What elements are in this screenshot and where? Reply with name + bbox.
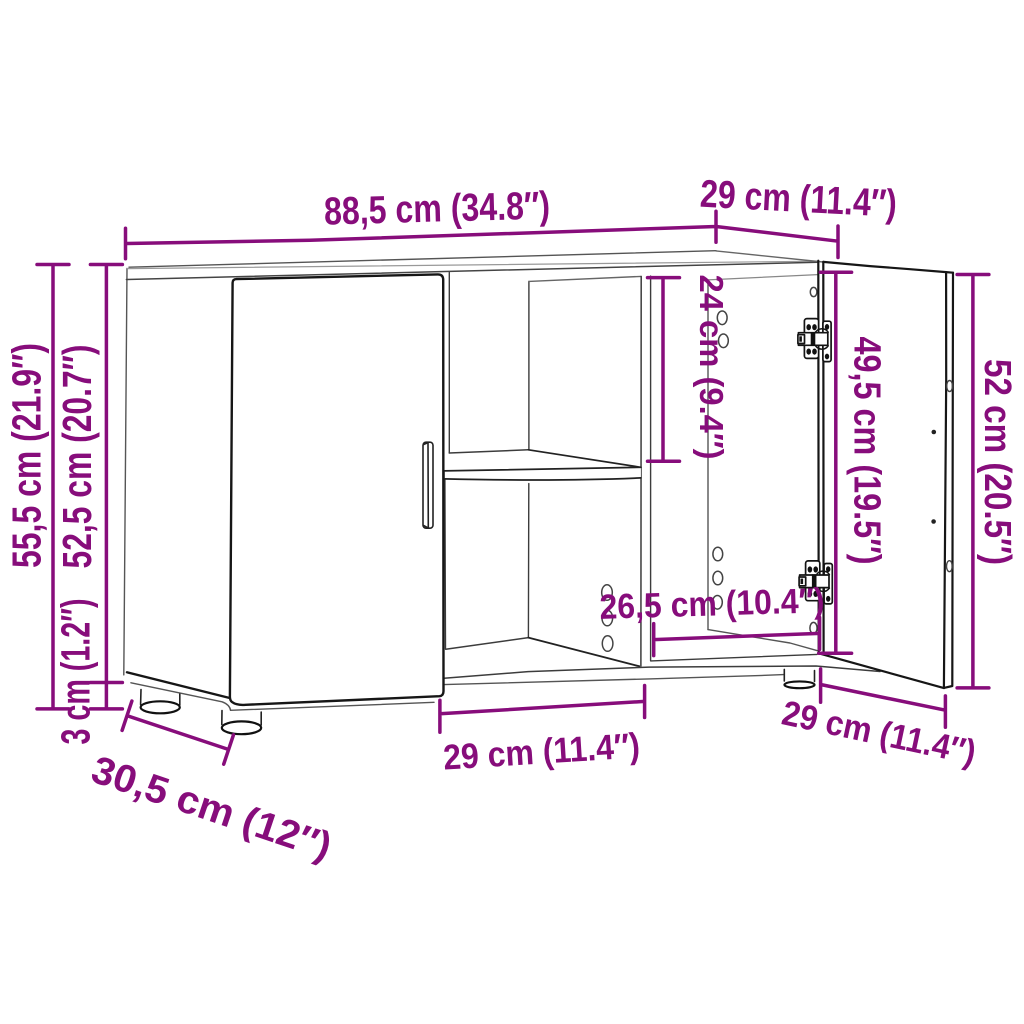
svg-text:49,5 cm (19.5″): 49,5 cm (19.5″): [846, 337, 888, 565]
svg-text:88,5 cm (34.8″): 88,5 cm (34.8″): [323, 184, 550, 233]
svg-text:24 cm (9.4″): 24 cm (9.4″): [692, 275, 729, 460]
svg-text:52,5 cm (20.7″): 52,5 cm (20.7″): [54, 345, 100, 569]
svg-text:3 cm (1.2″): 3 cm (1.2″): [53, 599, 99, 745]
svg-text:26,5 cm (10.4″): 26,5 cm (10.4″): [599, 581, 825, 627]
svg-text:52 cm (20.5″): 52 cm (20.5″): [976, 359, 1018, 565]
svg-text:55,5 cm (21.9″): 55,5 cm (21.9″): [4, 343, 50, 568]
